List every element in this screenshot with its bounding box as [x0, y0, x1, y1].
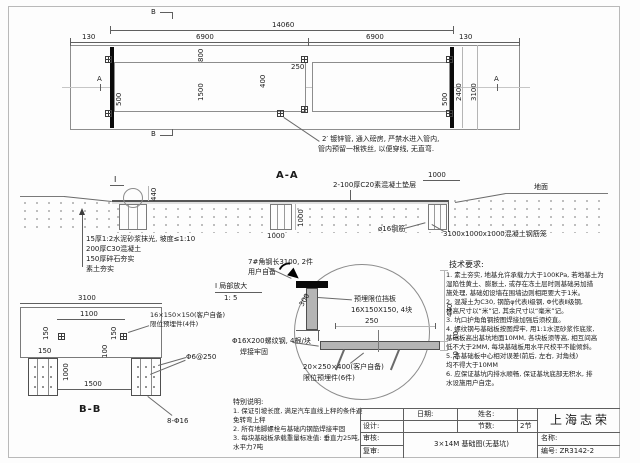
detail-label-underline	[215, 292, 262, 293]
anchor-bolt-symbol	[105, 56, 112, 63]
dim-tick	[435, 323, 436, 329]
dim-tick	[110, 26, 111, 34]
deck-line	[296, 330, 320, 331]
tech-note-line: 1. 素土夯实, 地基允许承载力大于100KPa, 若地基土为	[446, 272, 604, 280]
angle-steel	[296, 281, 328, 288]
leader-line	[350, 190, 351, 200]
tech-note-line: 5. 各基础板中心相对误差(前后, 左右, 对角线)	[446, 353, 578, 361]
titleblock-date-label: 日期:	[417, 410, 433, 418]
dim-1500: 1500	[84, 380, 102, 388]
cushion-note: 2-100厚C20素混凝土垫层	[333, 181, 416, 189]
dim-440: 440	[150, 188, 158, 201]
titleblock-check-label: 审核:	[363, 434, 379, 442]
dim-line	[295, 204, 296, 230]
dim-1100: 1100	[80, 310, 98, 318]
dim-800: 800	[197, 49, 205, 62]
detail-marker-label: I	[114, 175, 116, 185]
titleblock-line	[360, 445, 403, 446]
detail-scale: 1: 5	[224, 294, 238, 302]
layer-note: 15厚1:2水泥砂浆抹光, 坡度≤1:10	[86, 235, 195, 243]
bolt-center	[378, 330, 379, 352]
special-note-line: 免转弯上秤	[233, 417, 266, 425]
arrow-up	[79, 208, 85, 215]
titleblock-line	[537, 445, 620, 446]
marker-hook	[160, 12, 172, 13]
layer-note: 200厚C30混凝土	[86, 245, 141, 253]
plate-edge-line	[318, 330, 319, 341]
section-aa-title: A-A	[276, 170, 299, 182]
embed-plate-symbol	[58, 333, 65, 340]
soil-hatch-right	[449, 197, 608, 233]
anchor-bolt-symbol	[301, 56, 308, 63]
ground-line-right	[505, 193, 608, 194]
anchor-bolt-symbol	[301, 106, 308, 113]
stirrup-note: Φ6@250	[186, 353, 216, 361]
dim-tick	[519, 38, 520, 46]
titleblock-sections-label: 节数:	[478, 422, 494, 430]
marker-tick	[100, 84, 101, 91]
tech-note-line: 2. 混凝土为C30, 钢筋φ代表Ⅰ级钢, Φ代表Ⅱ级钢,	[446, 299, 583, 307]
embed-plate-note: 限位预埋件(4件)	[150, 321, 198, 329]
pipe-note: 管内预留一根铁丝, 以便穿线, 无直弯.	[318, 145, 434, 153]
marker-underline	[110, 185, 124, 186]
tech-note-line: 湿陷性黄土、膨胀土, 或存在冻土层时则基础另加措	[446, 281, 593, 289]
tech-notes-title: 技术要求:	[449, 260, 484, 270]
anchor-bolt-symbol	[277, 110, 284, 117]
bolt-note: 焊接牢固	[240, 348, 268, 356]
titleblock-number-value: 编号: ZR3142-2	[541, 447, 594, 455]
drawing-sheet: 14060 130 6900 6900 130 800 1500 400 250…	[0, 0, 640, 463]
ground-label: 地面	[533, 183, 549, 191]
tech-note-line: 4. 螺纹钢与基础板按图焊牢, 用1:1水泥砂浆作底浆,	[446, 326, 594, 334]
plan-deck-module-right	[312, 62, 450, 112]
dim-pier-h-1000: 1000	[267, 232, 285, 240]
dim-line	[148, 186, 149, 201]
base-plate-note: 限位预埋件(6件)	[303, 374, 355, 382]
special-note-line: 3. 每块基础板承载重量标准值: 垂直力25吨,	[233, 435, 360, 443]
layer-leader	[82, 214, 83, 267]
tech-note-line: 6. 应保证基坑内排水顺畅, 保证基坑底部无积水, 排	[446, 371, 593, 379]
embed-plate-note: 16×150×150(客户自备)	[150, 312, 225, 320]
dim-total-length: 14060	[272, 21, 294, 29]
pier-rebar	[271, 205, 291, 229]
embed-plate-symbol	[120, 333, 127, 340]
tech-note-line: 低不大于2MM, 每块基础板用水平尺校平不能倾斜。	[446, 344, 595, 352]
dim-500-right: 500	[441, 93, 449, 106]
bb-pier-left	[28, 358, 58, 396]
dim-150-h: 150	[38, 347, 51, 355]
titleblock-line	[517, 408, 518, 432]
soil-hatch-left	[19, 199, 112, 233]
marker-hook	[160, 135, 172, 136]
bb-pier-right	[131, 358, 161, 396]
detail-label: I 局部放大	[215, 282, 247, 290]
dim-400: 400	[259, 75, 267, 88]
titleblock-sections-value: 2节	[520, 422, 531, 430]
company-name: 上海志荣	[550, 413, 610, 427]
special-notes-title: 特别说明:	[233, 398, 263, 406]
dim-150-left: 150	[42, 327, 50, 340]
layer-note: 素土夯实	[86, 265, 114, 273]
stop-plate-note: 预埋限位挡板	[354, 295, 396, 303]
titleblock-line	[537, 408, 538, 458]
dim-margin-right: 130	[459, 33, 472, 41]
marker-hook	[172, 129, 173, 136]
titleblock-line	[403, 408, 404, 458]
anchor-bolt-symbol	[105, 110, 112, 117]
special-note-line: 水平力7吨	[233, 444, 263, 452]
dim-tick	[335, 323, 336, 329]
dim-margin-left: 130	[82, 33, 95, 41]
dim-line	[335, 326, 435, 327]
titleblock-line	[360, 420, 537, 421]
bolt-note: Φ16X200螺纹钢, 4根/块	[232, 337, 311, 345]
ground-line-left	[20, 196, 64, 197]
dim-250: 250	[291, 63, 304, 71]
dim-line	[20, 303, 162, 304]
layer-note: 150厚碎石夯实	[86, 255, 134, 263]
rebar-count-note: 8-Φ16	[167, 417, 188, 425]
base-plate-note: 20×250×400(客户自备)	[303, 363, 384, 371]
base-plate	[320, 341, 440, 350]
tech-note-line: 均不得大于10MM	[446, 362, 498, 370]
titleblock-line	[360, 408, 620, 409]
cage-note: 3100x1000x1000混凝土钢筋笼	[443, 230, 547, 238]
dim-line	[110, 30, 454, 31]
section-marker-a-left: A	[97, 75, 102, 83]
titleblock-name-label: 姓名:	[478, 410, 494, 418]
titleblock-line	[457, 408, 458, 432]
dim-pier-v-1000: 1000	[297, 209, 305, 227]
dim-pit-1000: 1000	[428, 171, 446, 179]
dim-100: 100	[101, 345, 109, 358]
titleblock-design-label: 设计:	[363, 422, 379, 430]
tech-note-line: 基础板高出基坑地面10MM, 各块板须等高, 相互间高	[446, 335, 597, 343]
tech-note-line: 施处理, 基础如设墙在围墙边则相距要大于1米。	[446, 290, 584, 298]
dim-line	[444, 270, 445, 350]
titleblock-line	[360, 408, 361, 458]
dim-3100: 3100	[470, 83, 478, 101]
dim-span-left: 6900	[196, 33, 214, 41]
tech-note-line: 水设施用户自定。	[446, 380, 498, 388]
dim-line	[58, 389, 131, 390]
dim-1000: 1000	[62, 363, 70, 381]
stop-plate-note: 16X150X150, 4块	[351, 306, 412, 314]
titleblock-line	[360, 432, 620, 433]
section-bb-title: B-B	[79, 404, 101, 416]
dim-150-right: 150	[110, 327, 118, 340]
anchor-bolt-symbol	[446, 110, 453, 117]
dim-250: 250	[365, 317, 378, 325]
special-note-line: 2. 所有地脚螺栓与基础内钢筋焊接牢固	[233, 426, 345, 434]
special-note-line: 1. 保证引坡长度, 满足汽车直线上秤的条件避	[233, 408, 362, 416]
dim-2400: 2400	[455, 83, 463, 101]
section-marker-a-right: A	[494, 75, 499, 83]
titleblock-title-label: 名称:	[541, 434, 557, 442]
rebar-note: ø16钢筋	[378, 225, 405, 233]
dim-line	[423, 180, 460, 181]
pipe-note: 2′ 镀锌管, 通入磅房, 严禁水进入管内,	[322, 135, 439, 143]
dim-3100: 3100	[78, 294, 96, 302]
marker-hook	[172, 12, 173, 19]
dim-1500: 1500	[197, 83, 205, 101]
angle-steel-note: 7#角钢长3100, 2件	[248, 258, 313, 266]
dim-tick	[308, 38, 309, 46]
tech-note-line: 标高尺寸以“米”记, 其余尺寸以“毫米”记。	[446, 308, 568, 316]
marker-tick	[497, 84, 498, 91]
dim-span-right: 6900	[366, 33, 384, 41]
tech-note-line: 3. 坑口护角角钢按图焊接加强后须校直。	[446, 317, 565, 325]
dim-line	[57, 319, 125, 320]
dim-tick	[70, 38, 71, 46]
dim-500-left: 500	[115, 93, 123, 106]
pier-rebar	[120, 205, 146, 229]
plan-deck-module-left	[114, 62, 306, 112]
dim-tick	[453, 26, 454, 34]
section-marker-b-top: B	[151, 8, 156, 16]
anchor-bolt-symbol	[446, 56, 453, 63]
section-marker-b-bottom: B	[151, 130, 156, 138]
dim-line	[70, 42, 520, 43]
detail-circle-marker	[123, 188, 143, 208]
titleblock-drawing-title: 3×14M 基础图(无基坑)	[434, 440, 509, 448]
titleblock-recheck-label: 复审:	[363, 447, 379, 455]
